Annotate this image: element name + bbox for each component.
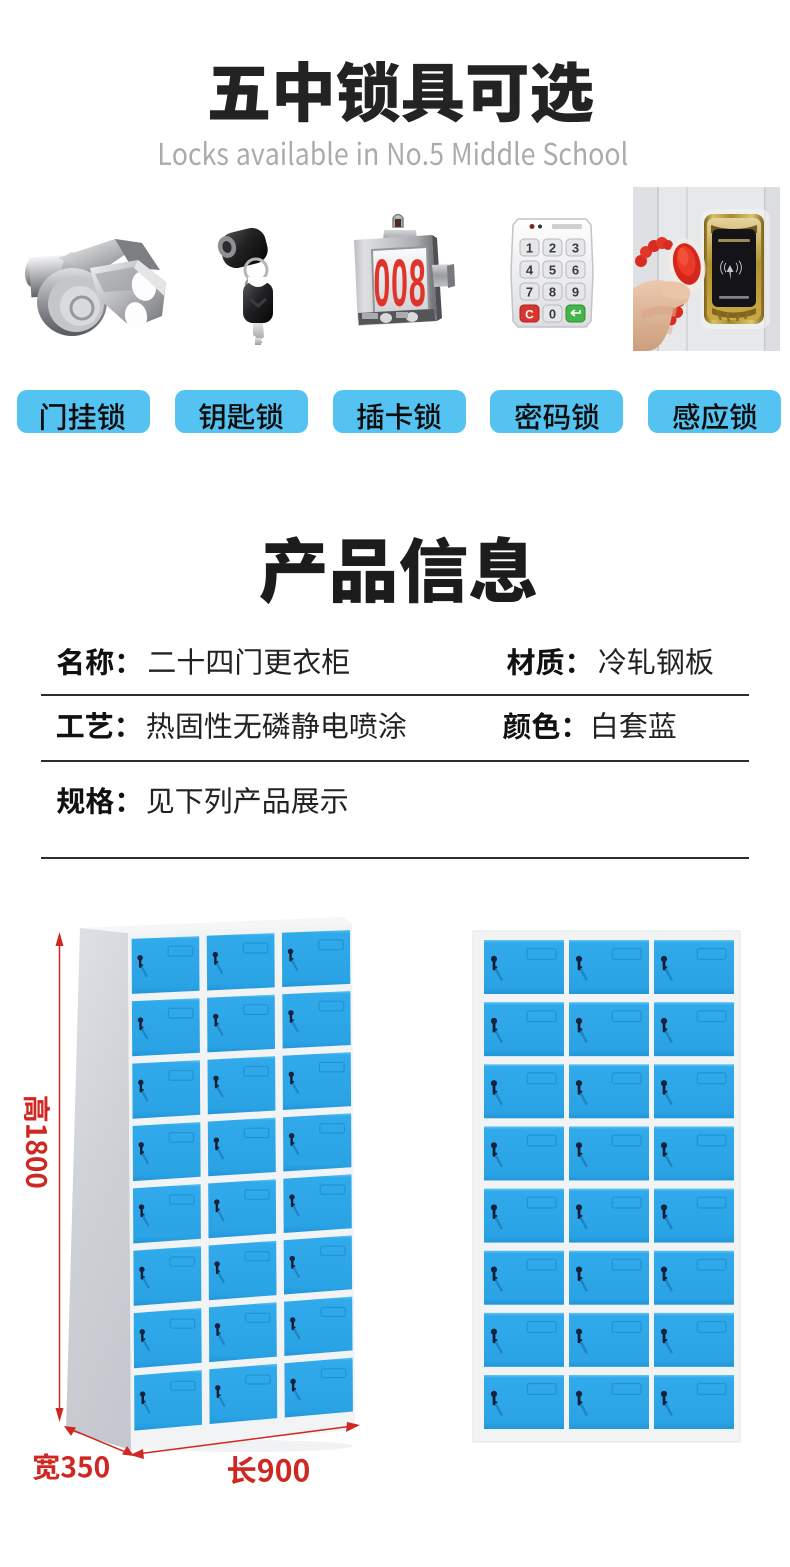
svg-text:3: 3	[572, 241, 579, 256]
svg-text:C: C	[525, 308, 534, 322]
svg-text:9: 9	[572, 285, 579, 300]
svg-text:0: 0	[549, 307, 556, 322]
svg-text:6: 6	[572, 263, 579, 278]
svg-text:7: 7	[526, 285, 533, 300]
svg-text:1: 1	[526, 241, 533, 256]
svg-text:4: 4	[526, 263, 534, 278]
svg-text:5: 5	[549, 263, 556, 278]
svg-text:2: 2	[549, 241, 556, 256]
svg-text:8: 8	[549, 285, 556, 300]
